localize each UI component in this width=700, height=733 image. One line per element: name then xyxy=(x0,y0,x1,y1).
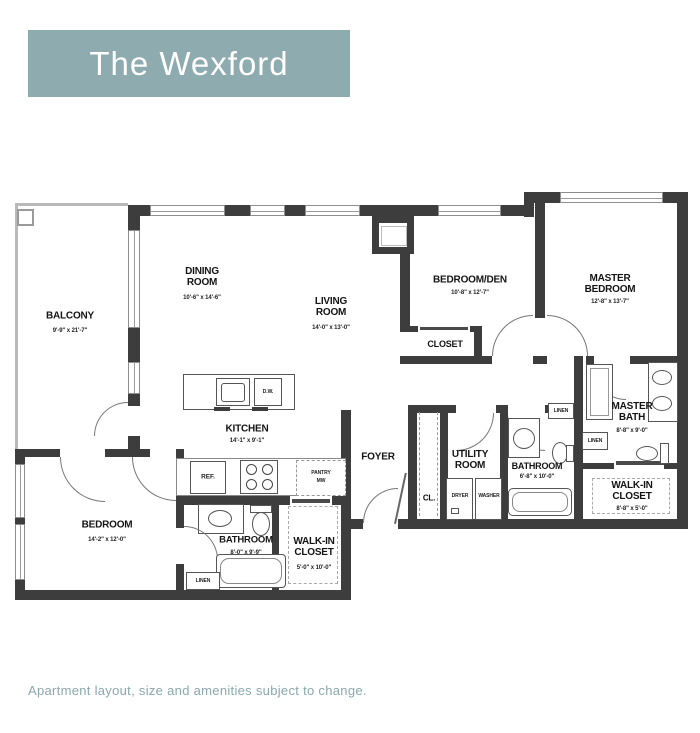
bedroom-door-arc xyxy=(132,457,176,501)
room-dims-walk-in-2: 5'-0" x 10'-0" xyxy=(297,565,332,571)
wall xyxy=(524,192,534,217)
room-label-closet: CLOSET xyxy=(427,339,462,349)
window xyxy=(150,205,225,216)
walk-in-slider-door xyxy=(616,461,664,465)
bedroom-door-arc xyxy=(60,457,105,502)
disclaimer-text: Apartment layout, size and amenities sub… xyxy=(28,683,367,698)
bathtub-inner xyxy=(512,492,568,512)
wall xyxy=(535,192,545,318)
room-dims-master-walk-in: 8'-8" x 5'-0" xyxy=(616,506,647,512)
toilet xyxy=(636,446,658,461)
wall xyxy=(176,564,184,600)
wall xyxy=(574,463,614,469)
wall xyxy=(400,326,418,332)
stove-burner xyxy=(262,464,273,475)
room-label-balcony: BALCONY xyxy=(46,310,94,321)
wall xyxy=(474,326,482,356)
room-label-utility: UTILITY ROOM xyxy=(448,449,492,471)
wall xyxy=(15,449,60,457)
wall xyxy=(398,519,688,529)
window xyxy=(560,192,663,203)
room-dims-kitchen: 14'-1" x 9'-1" xyxy=(230,438,265,444)
room-dims-dining: 10'-6" x 14'-6" xyxy=(183,295,221,301)
toilet-tank xyxy=(566,445,574,462)
room-dims-balcony: 9'-9" x 21'-7" xyxy=(53,328,88,334)
balcony-door-arc xyxy=(94,402,128,436)
wall xyxy=(128,394,140,406)
entry-door-arc xyxy=(363,488,398,523)
window xyxy=(305,205,360,216)
room-label-bathroom-2: BATHROOM xyxy=(512,461,563,471)
closet-slider-door xyxy=(420,327,468,330)
column-inner xyxy=(381,226,407,246)
room-label-master-bedroom: MASTER BEDROOM xyxy=(579,273,641,295)
bathroom-sink xyxy=(513,428,535,449)
room-dims-bedroom-2: 14'-2" x 12'-0" xyxy=(88,537,126,543)
washer xyxy=(475,478,502,520)
bathtub-inner xyxy=(220,558,282,584)
den-door-arc xyxy=(492,315,533,356)
room-dims-living: 14'-0" x 13'-0" xyxy=(312,325,350,331)
dryer-label: DRYER xyxy=(452,493,469,499)
wall xyxy=(105,449,150,457)
wall xyxy=(332,496,346,505)
wall xyxy=(128,328,140,362)
toilet-tank xyxy=(250,505,272,513)
balcony-wall xyxy=(15,203,18,451)
room-dims-bathroom-2: 6'-8" x 10'-0" xyxy=(520,474,555,480)
toilet-tank xyxy=(660,443,669,464)
stove-burner xyxy=(262,479,273,490)
linen-label: LINEN xyxy=(554,408,569,414)
room-label-entry-closet: CL. xyxy=(423,495,435,504)
island-detail xyxy=(252,407,268,411)
room-label-bedroom-den: BEDROOM/DEN xyxy=(433,274,507,285)
room-label-dining: DINING ROOM xyxy=(178,266,226,288)
wall xyxy=(285,205,305,216)
island-detail xyxy=(214,407,230,411)
window xyxy=(15,464,25,518)
room-label-master-bath: MASTER BATH xyxy=(607,401,657,423)
wall xyxy=(533,356,547,364)
room-label-walk-in-2: WALK-IN CLOSET xyxy=(288,536,340,558)
window xyxy=(438,205,501,216)
wall xyxy=(225,205,250,216)
kitchen-sink-basin xyxy=(221,383,245,402)
stove-burner xyxy=(246,479,257,490)
toilet xyxy=(252,512,270,536)
room-label-foyer: FOYER xyxy=(361,451,394,462)
room-label-bedroom-2: BEDROOM xyxy=(82,519,133,530)
pantry-label: PANTRY xyxy=(311,470,330,476)
wall xyxy=(586,356,594,364)
linen-label: LINEN xyxy=(588,438,603,444)
dishwasher-label: D.W. xyxy=(263,389,273,395)
floorplan-drawing: BALCONY 9'-9" x 21'-7" DINING ROOM 10'-6… xyxy=(0,0,700,660)
wall xyxy=(408,405,417,519)
wall xyxy=(360,205,438,216)
linen-label: LINEN xyxy=(196,578,211,584)
master-sink xyxy=(652,370,672,385)
utility-door-arc xyxy=(456,413,494,451)
dryer-detail xyxy=(451,508,459,514)
wall xyxy=(400,356,492,364)
floorplan-page: { "header": { "title": "The Wexford" }, … xyxy=(0,0,700,733)
balcony-column xyxy=(17,209,34,226)
room-dims-master-bath: 8'-8" x 9'-0" xyxy=(616,428,647,434)
window xyxy=(15,524,25,580)
refrigerator-label: REF. xyxy=(201,474,215,481)
room-label-kitchen: KITCHEN xyxy=(225,423,268,434)
stove-burner xyxy=(246,464,257,475)
window xyxy=(128,230,140,328)
washer-label: WASHER xyxy=(478,493,499,499)
room-dims-master-bedroom: 12'-8" x 13'-7" xyxy=(591,299,629,305)
room-dims-bedroom-den: 10'-8" x 12'-7" xyxy=(451,290,489,296)
wall xyxy=(128,205,140,230)
room-label-bathroom-1: BATHROOM xyxy=(219,536,273,547)
room-label-master-walk-in: WALK-IN CLOSET xyxy=(605,480,659,502)
closet-slider-door xyxy=(292,499,330,503)
window xyxy=(250,205,285,216)
bathroom-sink xyxy=(208,510,232,527)
balcony-wall xyxy=(15,203,128,206)
microwave-label: MW xyxy=(317,478,326,484)
wall xyxy=(341,410,351,600)
room-dims-bathroom-1: 8'-0" x 9'-9" xyxy=(230,550,261,556)
room-label-living: LIVING ROOM xyxy=(309,296,353,318)
stove xyxy=(240,460,278,494)
window xyxy=(128,362,140,394)
master-bedroom-door-arc xyxy=(547,315,588,356)
